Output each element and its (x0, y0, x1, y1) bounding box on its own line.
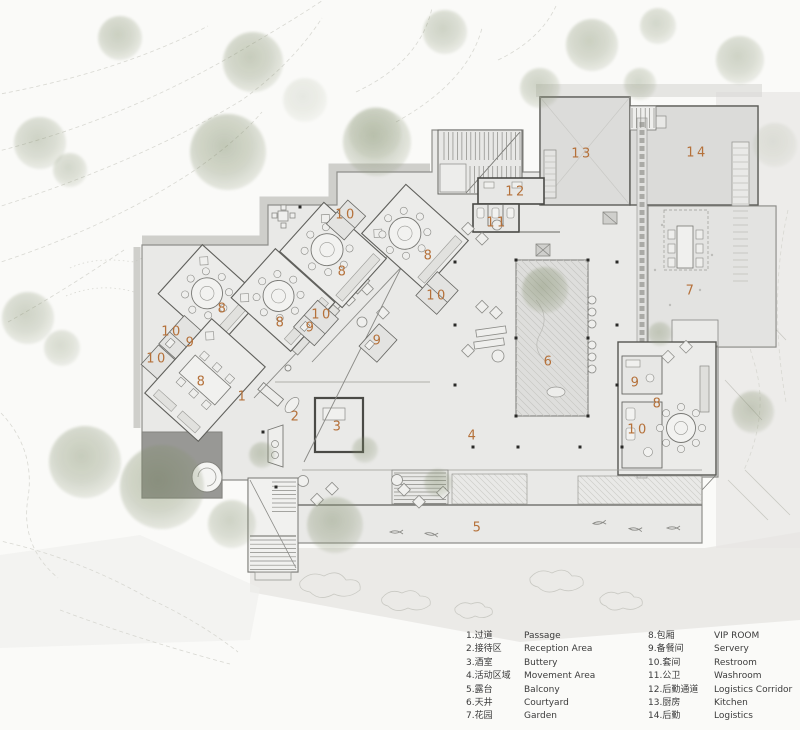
legend-item-number-zh: 2.接待区 (466, 643, 524, 656)
legend-item: 1.过道Passage (466, 630, 648, 643)
kitchen-room (540, 97, 630, 205)
legend-item: 9.备餐间Servery (648, 643, 792, 656)
legend-item-english: Logistics Corridor (714, 684, 792, 697)
legend-item-number-zh: 3.酒室 (466, 657, 524, 670)
legend-item-english: Reception Area (524, 643, 592, 656)
legend-item-number-zh: 4.活动区域 (466, 670, 524, 683)
legend-item-english: Passage (524, 630, 561, 643)
legend-item: 7.花园Garden (466, 710, 648, 723)
stair-tower (248, 478, 298, 580)
legend-item-number-zh: 9.备餐间 (648, 643, 714, 656)
round-tables (656, 403, 705, 452)
legend-column-2: 8.包厢VIP ROOM9.备餐间Servery10.套间Restroom11.… (648, 630, 792, 724)
legend-item: 3.酒室Buttery (466, 657, 648, 670)
legend-item-english: Kitchen (714, 697, 748, 710)
legend-item-english: Buttery (524, 657, 558, 670)
legend-item-number-zh: 13.厨房 (648, 697, 714, 710)
legend-column-1: 1.过道Passage2.接待区Reception Area3.酒室Butter… (466, 630, 648, 724)
legend-item: 10.套间Restroom (648, 657, 792, 670)
courtyard (516, 260, 588, 416)
legend-item: 5.露台Balcony (466, 684, 648, 697)
legend-item: 6.天井Courtyard (466, 697, 648, 710)
legend-item-english: Courtyard (524, 697, 569, 710)
legend-item: 11.公卫Washroom (648, 670, 792, 683)
legend-item-english: Servery (714, 643, 749, 656)
garden (648, 206, 776, 347)
legend-item-english: Movement Area (524, 670, 595, 683)
legend-item: 14.后勤Logistics (648, 710, 792, 723)
legend-item: 13.厨房Kitchen (648, 697, 792, 710)
legend-item-english: Restroom (714, 657, 757, 670)
legend-item-english: Garden (524, 710, 557, 723)
legend-item-number-zh: 12.后勤通道 (648, 684, 714, 697)
legend-item-number-zh: 6.天井 (466, 697, 524, 710)
legend-item-number-zh: 7.花园 (466, 710, 524, 723)
legend-item: 4.活动区域Movement Area (466, 670, 648, 683)
legend-item: 2.接待区Reception Area (466, 643, 648, 656)
legend-item: 8.包厢VIP ROOM (648, 630, 792, 643)
legend-item-number-zh: 14.后勤 (648, 710, 714, 723)
legend-item-number-zh: 8.包厢 (648, 630, 714, 643)
legend-item-english: Washroom (714, 670, 762, 683)
legend-item-english: Balcony (524, 684, 560, 697)
legend-item-number-zh: 1.过道 (466, 630, 524, 643)
legend-item-number-zh: 5.露台 (466, 684, 524, 697)
floor-plan-drawing (0, 0, 800, 730)
legend-item-number-zh: 11.公卫 (648, 670, 714, 683)
legend-item-english: Logistics (714, 710, 753, 723)
legend-item-number-zh: 10.套间 (648, 657, 714, 670)
legend-item-english: VIP ROOM (714, 630, 759, 643)
pool (142, 432, 222, 498)
site-plan-page: 1234567888888999910101010101011121314 1.… (0, 0, 800, 730)
legend-item: 12.后勤通道Logistics Corridor (648, 684, 792, 697)
logistics-corridor-room (478, 178, 544, 204)
legend: 1.过道Passage2.接待区Reception Area3.酒室Butter… (466, 630, 792, 724)
